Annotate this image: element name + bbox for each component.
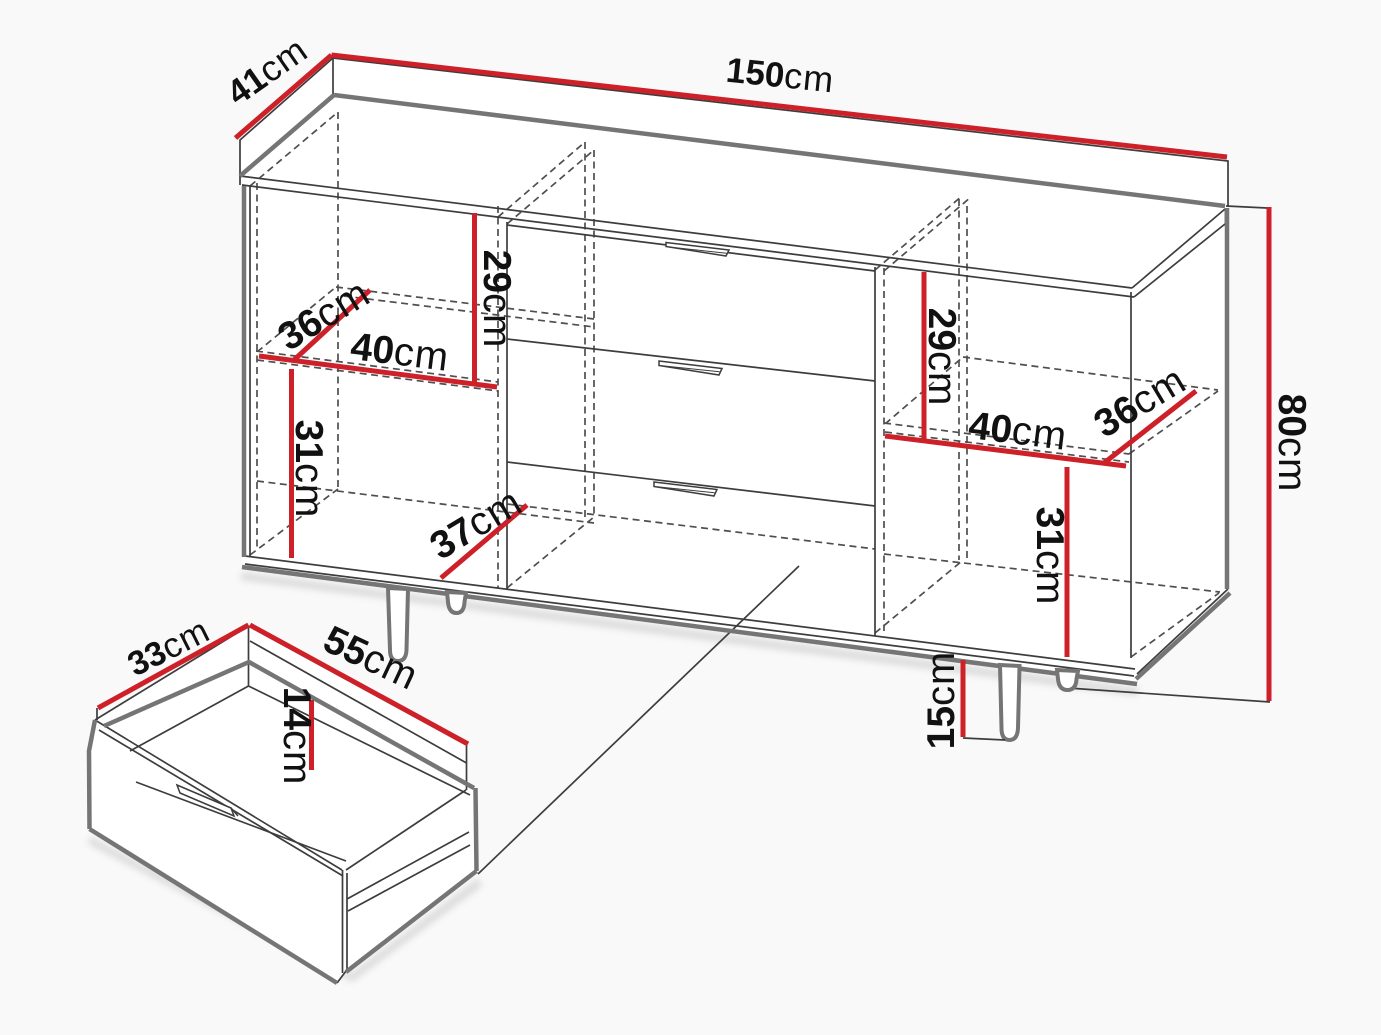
svg-text:29cm: 29cm (920, 308, 964, 407)
svg-text:31cm: 31cm (1028, 507, 1072, 606)
svg-text:29cm: 29cm (475, 250, 519, 349)
svg-text:80cm: 80cm (1270, 394, 1314, 493)
svg-text:14cm: 14cm (275, 687, 319, 786)
svg-text:31cm: 31cm (287, 420, 331, 519)
svg-text:15cm: 15cm (919, 651, 963, 750)
